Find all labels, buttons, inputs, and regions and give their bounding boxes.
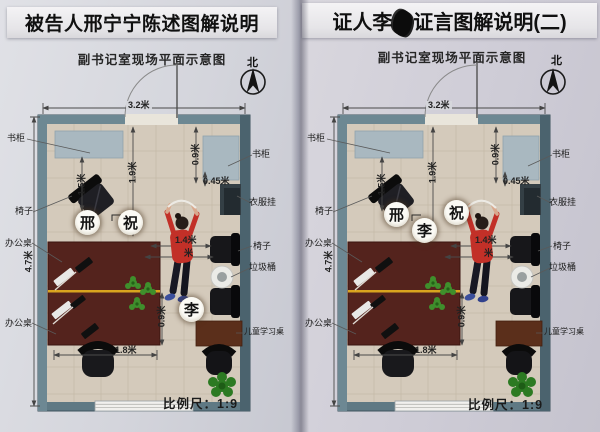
office-desk-upper-label: 办公桌 [5, 239, 32, 248]
kids-study-desk [196, 321, 242, 346]
dim-bookcase-depth: 0.9米 [491, 144, 500, 166]
kids-chair [204, 348, 234, 376]
bookcase-right-label: 书柜 [252, 150, 270, 159]
dim-bookcase-gap: 0.45米 [503, 177, 530, 186]
person-circle-li: 李 [412, 218, 437, 243]
chair-left-label: 椅子 [15, 207, 33, 216]
person-circle-xing: 邢 [75, 210, 100, 235]
scale-label: 比例尺：1:9 [163, 393, 238, 412]
bookcase-left [55, 131, 123, 158]
dim-hidden-suffix: 米 [184, 249, 193, 258]
chair-right-label: 椅子 [553, 242, 571, 251]
left-panel: 被告人邢宁宁陈述图解说明 副书记室现场平面示意图 北 [0, 0, 300, 432]
kids-study-desk-label: 儿童学习桌 [544, 328, 584, 336]
clothes-rack-label: 衣服挂 [549, 198, 576, 207]
bookcase-left-label: 书柜 [7, 134, 25, 143]
clothes-rack-label: 衣服挂 [249, 198, 276, 207]
dim-desk-depth: 0.9米 [157, 306, 166, 328]
office-desk-lower-label: 办公桌 [305, 319, 332, 328]
door [125, 62, 178, 125]
dim-person-to-wall: 1.4米 [475, 236, 497, 245]
dim-hidden-suffix: 米 [484, 249, 493, 258]
bookcase-right [203, 136, 239, 180]
trash-bin-label: 垃圾桶 [249, 263, 276, 272]
photo-of-two-diagram-pages: 被告人邢宁宁陈述图解说明 副书记室现场平面示意图 北 [0, 0, 600, 432]
person-circle-zhu: 祝 [444, 200, 469, 225]
office-desk-lower-label: 办公桌 [5, 319, 32, 328]
clothes-rack [220, 184, 241, 215]
right-wall-chair-1 [210, 233, 240, 266]
trash-bin [511, 266, 533, 288]
clothes-rack [520, 184, 541, 215]
dim-room-height: 4.7米 [24, 251, 33, 273]
bookcase-right-label: 书柜 [552, 150, 570, 159]
door [425, 62, 478, 125]
dim-bookcase-gap: 0.45米 [203, 177, 230, 186]
dim-room-width: 3.2米 [426, 101, 452, 110]
right-wall-chair-1 [510, 233, 540, 266]
scale-label: 比例尺：1:9 [468, 394, 543, 413]
person-circle-xing: 邢 [384, 202, 409, 227]
right-wall-chair-2 [210, 285, 240, 318]
office-desk-upper-label: 办公桌 [305, 239, 332, 248]
dim-left-area-depth: 1.9米 [128, 162, 137, 184]
kids-study-desk-label: 儿童学习桌 [244, 328, 284, 336]
bookcase-left [355, 131, 423, 158]
trash-bin [211, 266, 233, 288]
dim-room-width: 3.2米 [126, 101, 152, 110]
dim-room-height: 4.7米 [324, 251, 333, 273]
dim-bookcase-depth: 0.9米 [191, 144, 200, 166]
person-circle-li: 李 [179, 297, 204, 322]
dim-desk-width: 1.8米 [415, 346, 437, 355]
kids-study-desk [496, 321, 542, 346]
right-panel: 证人李证言图解说明(二) 副书记室现场平面示意图 北 [300, 0, 600, 432]
dim-person-to-wall: 1.4米 [175, 236, 197, 245]
dim-left-area-depth: 1.9米 [428, 162, 437, 184]
compass-icon [241, 68, 265, 94]
trash-bin-label: 垃圾桶 [549, 263, 576, 272]
dim-chair-area: 1.5米 [377, 174, 386, 196]
chair-left-label: 椅子 [315, 207, 333, 216]
bookcase-right [503, 136, 539, 180]
kids-chair [504, 348, 534, 376]
left-floor-plan [0, 0, 300, 432]
bookcase-left-label: 书柜 [307, 134, 325, 143]
chair-right-label: 椅子 [253, 242, 271, 251]
dim-desk-width: 1.8米 [115, 346, 137, 355]
floor-plan-drawing [0, 0, 300, 432]
person-circle-zhu: 祝 [118, 210, 143, 235]
dim-desk-depth: 0.9米 [457, 306, 466, 328]
dim-chair-area: 1.5米 [77, 174, 86, 196]
right-wall-chair-2 [510, 285, 540, 318]
compass-icon [541, 68, 565, 94]
